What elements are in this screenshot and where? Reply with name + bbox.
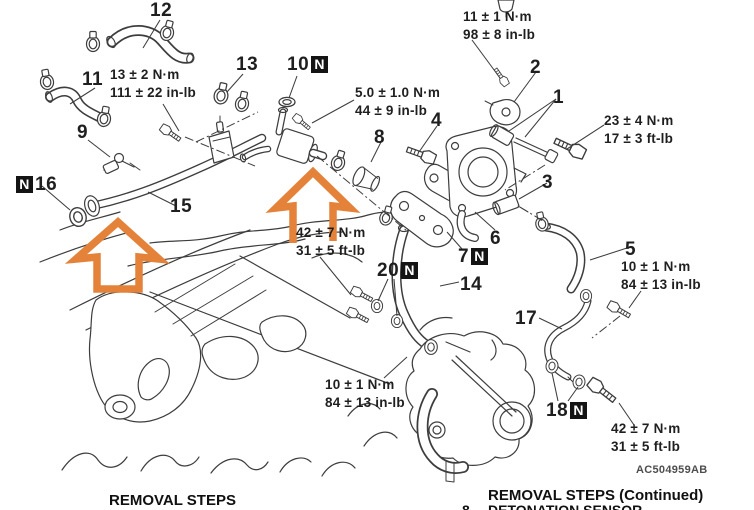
torque-spec-throttle-bolt: 23 ± 4 N·m 17 ± 3 ft-lb: [604, 112, 673, 148]
callout-9: 9: [77, 122, 88, 144]
callout-16: N16: [16, 174, 57, 196]
figure-code: AC504959AB: [636, 464, 707, 476]
removal-steps-title: REMOVAL STEPS: [109, 492, 236, 509]
callout-17: 17: [515, 308, 537, 330]
torque-spec-water-fitting: 5.0 ± 1.0 N·m 44 ± 9 in-lb: [355, 84, 440, 120]
callout-10: 10N: [287, 54, 328, 76]
torque-spec-rear-bolt: 42 ± 7 N·m 31 ± 5 ft-lb: [611, 420, 680, 456]
n-badge: N: [16, 176, 33, 193]
up-arrow-left-icon: [76, 222, 159, 289]
n-badge: N: [570, 402, 587, 419]
removal-step-item: 8DETONATION SENSOR: [462, 502, 642, 510]
step-label: DETONATION SENSOR: [488, 502, 642, 510]
callout-2: 2: [530, 57, 541, 79]
callout-8: 8: [374, 127, 385, 149]
callout-13: 13: [236, 54, 258, 76]
callout-11: 11: [82, 69, 103, 91]
torque-spec-sensor-bracket: 11 ± 1 N·m 98 ± 8 in-lb: [463, 8, 535, 44]
callout-6: 6: [490, 228, 501, 250]
torque-spec-right-fitting: 10 ± 1 N·m 84 ± 13 in-lb: [621, 258, 701, 294]
torque-spec-lower-bolts: 10 ± 1 N·m 84 ± 13 in-lb: [325, 376, 405, 412]
engine-block-art: [40, 212, 452, 476]
torque-spec-center-bolts: 42 ± 7 N·m 31 ± 5 ft-lb: [296, 224, 365, 260]
n-badge: N: [471, 248, 488, 265]
callout-12: 12: [150, 0, 172, 22]
turbo-assembly-art: [406, 332, 535, 482]
callout-20: 20N: [377, 260, 418, 282]
callout-14: 14: [460, 274, 482, 296]
callout-3: 3: [542, 172, 553, 194]
torque-spec-hose-clamp: 13 ± 2 N·m 111 ± 22 in-lb: [110, 66, 196, 102]
exploded-parts-diagram: 12 11 13 10N 9 N16 15 8 4 2 1 3 6 7N 14 …: [0, 0, 754, 510]
callout-7: 7N: [458, 246, 488, 268]
callout-1: 1: [553, 87, 564, 109]
step-number: 8: [462, 502, 488, 510]
callout-18: 18N: [546, 400, 587, 422]
callout-15: 15: [170, 196, 192, 218]
n-badge: N: [401, 262, 418, 279]
n-badge: N: [311, 56, 328, 73]
